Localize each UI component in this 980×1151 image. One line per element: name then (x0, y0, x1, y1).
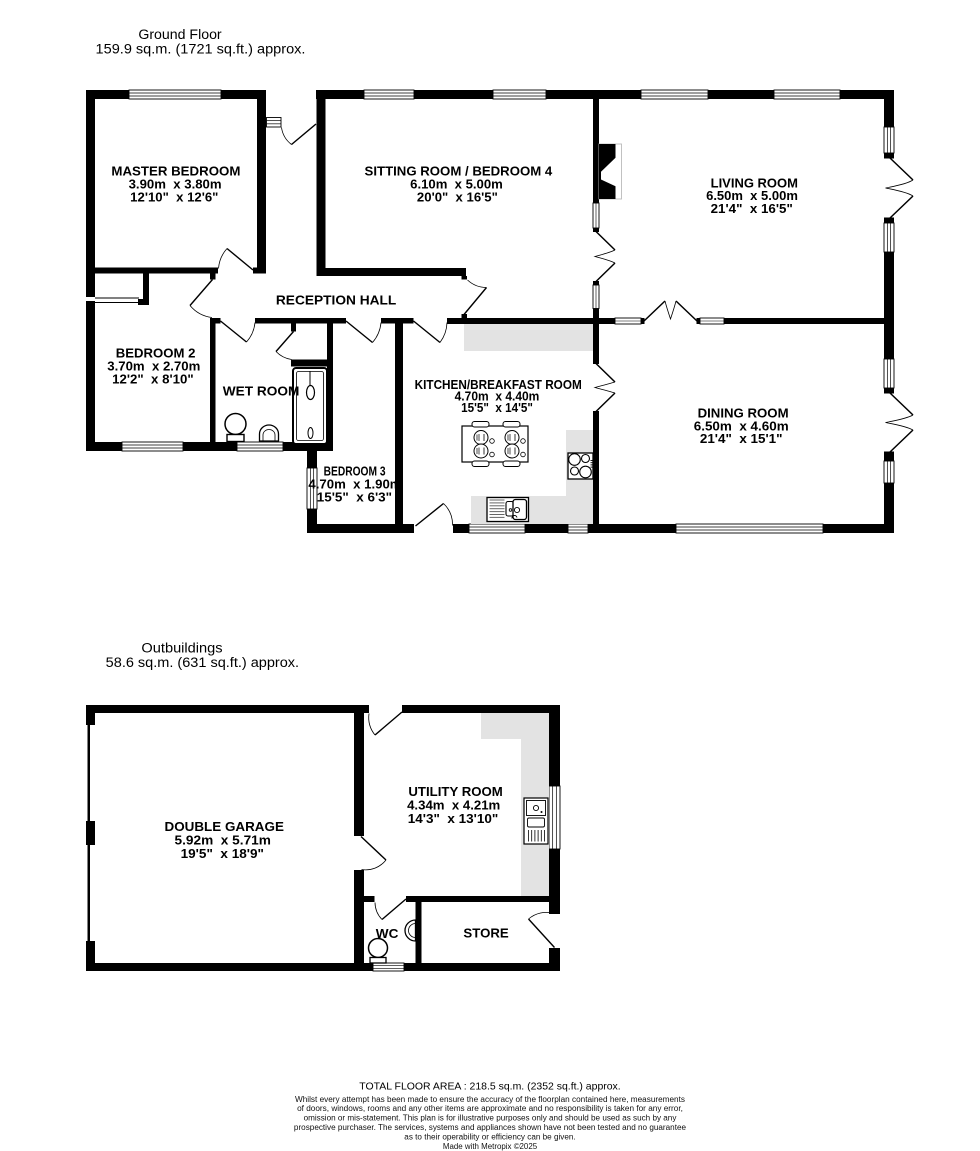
svg-text:RECEPTION HALL: RECEPTION HALL (276, 292, 396, 307)
svg-text:21'4" x 15'1": 21'4" x 15'1" (700, 431, 783, 446)
svg-text:19'5" x 18'9": 19'5" x 18'9" (181, 846, 264, 861)
svg-text:of doors, windows, rooms and a: of doors, windows, rooms and any other i… (297, 1104, 683, 1113)
svg-text:WC: WC (376, 926, 399, 941)
svg-text:21'4" x 16'5": 21'4" x 16'5" (711, 201, 793, 216)
svg-text:prospective purchaser. The ser: prospective purchaser. The services, sys… (294, 1123, 686, 1132)
svg-text:Made with Metropix ©2025: Made with Metropix ©2025 (443, 1142, 538, 1151)
svg-text:58.6 sq.m. (631 sq.ft.) approx: 58.6 sq.m. (631 sq.ft.) approx. (106, 655, 299, 671)
svg-text:159.9 sq.m. (1721 sq.ft.) appr: 159.9 sq.m. (1721 sq.ft.) approx. (96, 42, 306, 58)
svg-text:omission or mis-statement. Thi: omission or mis-statement. This plan is … (304, 1114, 677, 1123)
svg-text:STORE: STORE (463, 926, 509, 941)
svg-text:as to their operability or eff: as to their operability or efficiency ca… (404, 1132, 575, 1141)
svg-text:Whilst every attempt has been: Whilst every attempt has been made to en… (295, 1095, 685, 1104)
svg-text:12'2" x 8'10": 12'2" x 8'10" (112, 371, 194, 386)
svg-text:15'5" x 6'3": 15'5" x 6'3" (317, 490, 392, 505)
svg-text:12'10" x 12'6": 12'10" x 12'6" (130, 189, 218, 204)
svg-text:15'5" x 14'5": 15'5" x 14'5" (461, 400, 533, 415)
svg-text:TOTAL FLOOR AREA : 218.5 sq.m.: TOTAL FLOOR AREA : 218.5 sq.m. (2352 sq.… (359, 1081, 620, 1092)
svg-text:14'3" x 13'10": 14'3" x 13'10" (408, 811, 499, 826)
svg-text:20'0" x 16'5": 20'0" x 16'5" (417, 189, 498, 204)
svg-text:WET ROOM: WET ROOM (223, 384, 300, 399)
